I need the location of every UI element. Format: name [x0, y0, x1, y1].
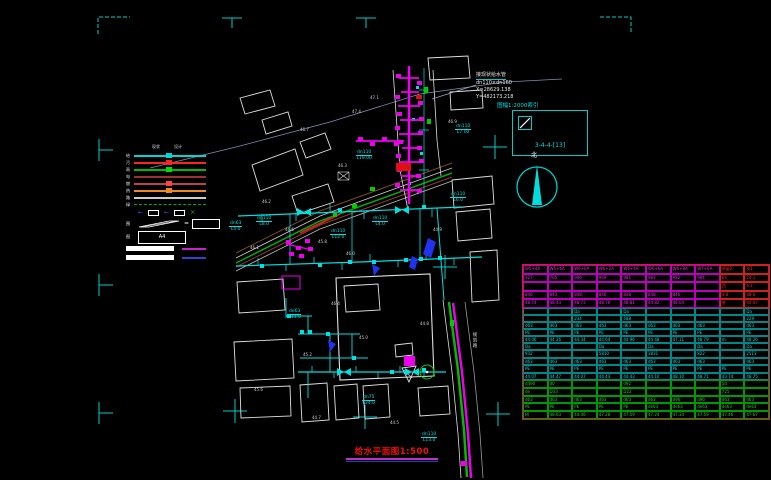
table-cell: d63: [695, 322, 720, 329]
spot-elevation: 46.4: [331, 302, 340, 306]
table-cell: d0: [548, 380, 573, 388]
table-cell: W5+6A: [548, 265, 573, 274]
table-cell: 229: [744, 315, 769, 322]
table-cell: 48.0: [744, 291, 769, 300]
blue-line-sample: [182, 257, 206, 259]
table-cell: [572, 380, 597, 388]
table-cell: PE: [646, 365, 671, 372]
table-cell: PE: [621, 329, 646, 336]
equals-sign: =: [184, 220, 189, 227]
table-cell: 44.06: [523, 336, 548, 343]
table-cell: de63: [671, 403, 696, 411]
scale-bar: [126, 255, 174, 260]
title-underline-blue: [346, 461, 438, 463]
table-cell: [720, 358, 745, 365]
spot-elevation: 44.9: [433, 228, 442, 232]
table-cell: 949: [597, 274, 622, 283]
table-cell: 234: [572, 315, 597, 322]
table-cell: [548, 308, 573, 315]
table-cell: de63: [744, 403, 769, 411]
road-name: 规划路: [471, 332, 477, 349]
corner-mark-top-right: [600, 17, 631, 34]
table-cell: 47.28: [597, 411, 622, 419]
table-cell: [548, 282, 573, 291]
table-cell: 984: [695, 274, 720, 283]
table-cell: 48.63: [548, 411, 573, 419]
table-cell: 西: [720, 282, 745, 291]
spot-elevation: 46.3: [338, 164, 347, 168]
table-cell: [671, 282, 696, 291]
legend-line-marker: [166, 167, 172, 172]
legend-line-sample: [134, 190, 206, 192]
legend-area-row: 围 =: [126, 217, 226, 230]
table-section-stations: W5+4AW5+6AW6+0AW6+2AW6+4AW6+6AW6+8AW7+0A…: [523, 265, 769, 308]
table-cell: PE: [548, 403, 573, 411]
table-cell: [744, 380, 769, 388]
table-cell: 44.48: [646, 336, 671, 343]
legend-line-sample: [134, 169, 206, 171]
table-cell: [523, 282, 548, 291]
map-index-title: 图幅1:2000索引: [497, 101, 538, 109]
connection-note: 接现状给水管 dn110×dn160 X=28629.138 Y=482173.…: [476, 72, 568, 101]
table-cell: 44.07: [523, 373, 548, 380]
legend-header: 现状 设计: [152, 144, 226, 152]
table-cell: d63: [572, 358, 597, 365]
edge-mark-left-2: [99, 274, 113, 296]
legend-bar-row-2: [126, 253, 226, 262]
table-cell: d63: [621, 358, 646, 365]
table-cell: 48.71: [695, 373, 720, 380]
table-cell: PE: [671, 365, 696, 372]
table-cell: 24.1: [744, 274, 769, 283]
table-cell: 44.96: [621, 336, 646, 343]
table-cell: [720, 343, 745, 350]
legend-box-symbol: [148, 210, 159, 216]
table-cell: [548, 315, 573, 322]
table-cell: [671, 350, 696, 357]
table-cell: [621, 343, 646, 350]
table-cell: [572, 388, 597, 396]
spot-elevation: 44.5: [390, 421, 399, 425]
table-cell: d96: [671, 396, 696, 404]
table-cell: PE: [548, 365, 573, 372]
table-cell: 44.34: [572, 336, 597, 343]
cross-mark: [223, 399, 247, 423]
table-cell: [720, 315, 745, 322]
table-cell: [744, 388, 769, 396]
legend-row: 热: [126, 187, 226, 194]
table-cell: d63: [744, 396, 769, 404]
magenta-line-sample: [182, 248, 206, 250]
table-cell: 4.8: [720, 291, 745, 300]
table-cell: 843: [548, 291, 573, 300]
table-cell: [572, 350, 597, 357]
spot-elevation: 47.4: [352, 110, 361, 114]
table-cell: 327: [523, 274, 548, 283]
pipe-label: de63L11.0: [288, 309, 301, 320]
legend-row: 雨: [126, 166, 226, 173]
pipe-label: dn110L4.0: [372, 216, 388, 227]
pipe-length: L6.0: [450, 198, 466, 203]
x-icon: ×: [190, 210, 195, 216]
table-cell: 822: [695, 350, 720, 357]
legend-line-sample: [134, 197, 206, 199]
table-cell: de: [523, 388, 548, 396]
table-cell: [695, 308, 720, 315]
drawing-title: 给水平面图1:500: [346, 445, 438, 457]
pipe-label: dn75L24.0: [362, 395, 375, 406]
legend-row-label: 污: [126, 161, 134, 165]
table-cell: d63: [548, 358, 573, 365]
table-cell: [646, 282, 671, 291]
table-cell: 预留2: [720, 265, 745, 274]
table-cell: 48.73: [572, 299, 597, 308]
table-cell: [523, 315, 548, 322]
spot-elevation: 45.8: [318, 240, 327, 244]
table-cell: 43.74: [720, 373, 745, 380]
table-cell: 932: [523, 350, 548, 357]
legend-row: 燃: [126, 180, 226, 187]
table-cell: 47.59: [621, 411, 646, 419]
table-cell: d92: [621, 380, 646, 388]
title-block: 给水平面图1:500: [346, 445, 438, 462]
table-cell: d63: [671, 358, 696, 365]
table-cell: [720, 308, 745, 315]
table-cell: Da: [621, 308, 646, 315]
table-cell: 44.10: [646, 373, 671, 380]
table-cell: Da: [695, 343, 720, 350]
table-cell: 48.26: [744, 336, 769, 343]
table-cell: d63: [621, 396, 646, 404]
table-section-pipe-run-a: DaDaDa234588229d63d63d63d63d63d63d63d63d…: [523, 308, 769, 343]
pipe-length: L19.00: [356, 156, 372, 161]
table-cell: 参: [720, 299, 745, 308]
table-cell: [597, 315, 622, 322]
table-cell: Da: [597, 343, 622, 350]
legend-area-label: 围: [126, 222, 134, 226]
legend-frame-row: 图 A4: [126, 230, 226, 244]
table-cell: [671, 388, 696, 396]
legend-line-sample: [134, 176, 206, 178]
table-cell: PE: [646, 329, 671, 336]
pipe-length: L5.0: [229, 227, 242, 232]
corner-mark-top-left: [98, 17, 130, 34]
table-cell: PE: [621, 403, 646, 411]
elevation-table: W5+4AW5+6AW6+0AW6+2AW6+4AW6+6AW6+8AW7+0A…: [522, 264, 770, 420]
table-cell: 48.04: [671, 299, 696, 308]
table-cell: W7+0A: [695, 265, 720, 274]
pipe-label: dn110L13.0: [421, 432, 437, 443]
table-cell: PE: [744, 329, 769, 336]
table-cell: [597, 308, 622, 315]
table-cell: D33: [548, 388, 573, 396]
legend: 现状 设计 给污雨电燃热路绿 ←←× 围 = 图 A4: [126, 144, 226, 262]
table-cell: 48.74: [523, 299, 548, 308]
edge-mark-left-1: [99, 139, 113, 161]
spot-elevation: 44.8: [420, 322, 429, 326]
table-cell: 44.64: [597, 336, 622, 343]
legend-row-label: 给: [126, 154, 134, 158]
legend-row-label: 热: [126, 189, 134, 193]
table-cell: PE: [523, 329, 548, 336]
table-cell: PE: [671, 329, 696, 336]
cross-mark: [486, 402, 510, 426]
table-cell: W6+0A: [572, 265, 597, 274]
table-cell: Da: [523, 343, 548, 350]
table-cell: 846: [671, 291, 696, 300]
spot-elevation: 46.6: [285, 228, 294, 232]
table-cell: 48.81: [621, 299, 646, 308]
table-cell: 48.75: [744, 373, 769, 380]
table-cell: d63: [523, 322, 548, 329]
spot-elevation: 46.0: [346, 252, 355, 256]
table-cell: [597, 282, 622, 291]
pipe-length: L8.0: [256, 222, 272, 227]
table-cell: de63: [695, 403, 720, 411]
table-cell: [671, 315, 696, 322]
hatch-square-icon: [518, 116, 532, 130]
table-cell: W6+4A: [621, 265, 646, 274]
legend-row-label: 绿: [126, 203, 134, 207]
cross-mark: [483, 135, 507, 159]
table-cell: 981: [646, 274, 671, 283]
table-cell: W5+4A: [523, 265, 548, 274]
table-cell: PE: [695, 329, 720, 336]
table-cell: d63: [523, 358, 548, 365]
legend-line-marker: [166, 181, 172, 186]
legend-header-existing: 现状: [152, 144, 160, 152]
table-cell: 44.26: [548, 336, 573, 343]
connection-coord-x: X=28629.138: [476, 87, 568, 94]
water-pipes: [236, 68, 482, 398]
fold-mark-top-1: [222, 18, 242, 28]
table-cell: W6+8A: [671, 265, 696, 274]
table-cell: D22: [621, 388, 646, 396]
north-arrow: 北: [511, 150, 565, 216]
legend-row: 给: [126, 152, 226, 159]
table-cell: 48.10: [671, 373, 696, 380]
spot-elevation: 46.7: [300, 128, 309, 132]
table-cell: Da: [744, 308, 769, 315]
legend-line-marker: [166, 160, 172, 165]
table-cell: 47.59: [695, 411, 720, 419]
table-cell: Da: [744, 343, 769, 350]
legend-frame-label: 图: [126, 235, 134, 239]
legend-box-symbol: [174, 210, 185, 216]
table-cell: d63: [597, 322, 622, 329]
north-arrow-icon: [511, 158, 565, 218]
edge-mark-left-3: [99, 402, 113, 424]
pipe-label: dn110L12.0: [330, 229, 346, 240]
cad-viewport[interactable]: { "app": {"background": "#000000", "mark…: [0, 0, 771, 480]
table-cell: d63: [646, 396, 671, 404]
connection-coord-y: Y=482173.218: [476, 94, 568, 101]
table-cell: d63: [671, 322, 696, 329]
legend-row-label: 电: [126, 175, 134, 179]
table-cell: [548, 350, 573, 357]
table-cell: [671, 380, 696, 388]
pipe-length: L12.0: [330, 235, 346, 240]
table-cell: 5d: [720, 380, 745, 388]
table-cell: d63: [646, 358, 671, 365]
table-cell: PE: [523, 365, 548, 372]
table-cell: PE: [572, 403, 597, 411]
legend-row-label: 路: [126, 196, 134, 200]
table-cell: PE: [548, 329, 573, 336]
table-cell: PE: [572, 365, 597, 372]
rect-symbol: [192, 219, 220, 229]
pipe-label: dn110L8.0: [256, 216, 272, 227]
pipe-label: dn110L19.00: [356, 150, 372, 161]
legend-row: 电: [126, 173, 226, 180]
table-cell: d63: [744, 322, 769, 329]
legend-bar-row-1: [126, 244, 226, 253]
table-cell: [597, 388, 622, 396]
table-cell: [695, 282, 720, 291]
table-cell: 848: [621, 291, 646, 300]
note-leader: [432, 85, 476, 99]
table-cell: d63: [597, 358, 622, 365]
legend-lines: 给污雨电燃热路绿: [126, 152, 226, 208]
legend-line-marker: [166, 153, 172, 158]
pipe-label: dn110L6.0: [450, 192, 466, 203]
table-cell: d490: [523, 380, 548, 388]
table-cell: 48.79: [695, 336, 720, 343]
legend-line-sample: [134, 162, 206, 164]
table-cell: [597, 380, 622, 388]
arrow-icon: ←: [138, 210, 143, 216]
table-cell: 47.34: [671, 411, 696, 419]
table-cell: [572, 343, 597, 350]
table-cell: [671, 308, 696, 315]
table-cell: 846: [523, 291, 548, 300]
legend-symbols: ←←×: [138, 208, 226, 217]
table-cell: d96: [695, 396, 720, 404]
connection-pipe-size: dn110×dn160: [476, 80, 568, 87]
table-cell: 848: [646, 291, 671, 300]
table-cell: 44.82: [646, 299, 671, 308]
table-cell: 982: [671, 274, 696, 283]
table-cell: d63: [572, 396, 597, 404]
table-cell: d63: [597, 396, 622, 404]
spot-elevation: 46.1: [250, 246, 259, 250]
table-cell: [621, 282, 646, 291]
table-cell: [720, 329, 745, 336]
table-cell: 47.67: [744, 411, 769, 419]
table-cell: d63: [548, 322, 573, 329]
table-cell: [695, 380, 720, 388]
parallelogram-symbol: [137, 218, 181, 230]
table-cell: d63: [572, 322, 597, 329]
spot-elevation: 45.6: [254, 388, 263, 392]
table-cell: d63: [744, 358, 769, 365]
table-cell: 44.07: [572, 373, 597, 380]
table-cell: [646, 308, 671, 315]
table-cell: d63: [621, 322, 646, 329]
spot-elevation: 47.1: [370, 96, 379, 100]
table-cell: d63: [523, 396, 548, 404]
connection-note-title: 接现状给水管: [476, 72, 506, 80]
legend-row-label: 雨: [126, 168, 134, 172]
table-cell: Da: [646, 343, 671, 350]
table-cell: d63: [720, 396, 745, 404]
legend-row: 污: [126, 159, 226, 166]
table-cell: 47.46: [720, 411, 745, 419]
table-cell: [523, 308, 548, 315]
table-cell: 44.47: [548, 373, 573, 380]
table-cell: 44.07: [744, 299, 769, 308]
table-cell: 支1: [744, 265, 769, 274]
table-cell: 981: [621, 274, 646, 283]
table-cell: PE: [572, 329, 597, 336]
table-cell: [646, 388, 671, 396]
table-cell: PE: [621, 365, 646, 372]
table-cell: 848: [572, 291, 597, 300]
table-cell: 47.24: [646, 411, 671, 419]
table-cell: W6+6A: [646, 265, 671, 274]
table-cell: 946: [572, 274, 597, 283]
table-cell: 44.46: [572, 411, 597, 419]
pipe-label: dn63L5.0: [229, 221, 242, 232]
green-details: [333, 87, 454, 379]
table-cell: [695, 315, 720, 322]
arrow-icon: ←: [164, 210, 169, 216]
spot-elevation: 44.7: [312, 416, 321, 420]
map-index-code: 3-4-4-[13]: [513, 142, 587, 149]
table-cell: [572, 282, 597, 291]
spot-elevation: 46.2: [262, 200, 271, 204]
legend-row-label: 燃: [126, 182, 134, 186]
legend-header-design: 设计: [174, 144, 182, 152]
table-cell: 树: [523, 411, 548, 419]
table-cell: PE: [597, 365, 622, 372]
table-cell: 47.11: [671, 336, 696, 343]
table-cell: PE: [523, 403, 548, 411]
table-cell: d63: [646, 322, 671, 329]
spot-elevation: 46.9: [448, 120, 457, 124]
table-cell: 725: [720, 388, 745, 396]
legend-line-sample: [134, 183, 206, 185]
table-cell: [621, 350, 646, 357]
pipe-length: L4.0: [372, 222, 388, 227]
table-cell: PE: [597, 329, 622, 336]
table-cell: 5810: [597, 350, 622, 357]
table-cell: [671, 343, 696, 350]
table-section-pipe-run-b: DaDaDaDaDa932581038318222513d63d63d63d63…: [523, 343, 769, 380]
table-cell: 44.43: [597, 373, 622, 380]
table-cell: 2513: [744, 350, 769, 357]
pipe-length: L13.0: [421, 438, 437, 443]
table-cell: PE: [720, 365, 745, 372]
table-cell: 846: [597, 291, 622, 300]
a4-frame-box: A4: [138, 231, 186, 244]
table-section-ground: d490d0d925ddeD33D22725d63d63d63d63d63d63…: [523, 380, 769, 419]
table-cell: [695, 299, 720, 308]
table-cell: PE: [597, 403, 622, 411]
table-cell: 4.1: [744, 282, 769, 291]
pipe-length: L11.0: [288, 315, 301, 320]
table-cell: [720, 350, 745, 357]
table-cell: PE: [695, 365, 720, 372]
table-cell: 3831: [646, 350, 671, 357]
legend-line-sample: [134, 155, 206, 157]
pipe-length: L24.0: [362, 401, 375, 406]
table-cell: [720, 322, 745, 329]
fold-mark-top-2: [356, 18, 376, 28]
legend-line-sample: [134, 204, 206, 205]
table-cell: d63: [548, 396, 573, 404]
spot-elevation: 45.0: [359, 336, 368, 340]
